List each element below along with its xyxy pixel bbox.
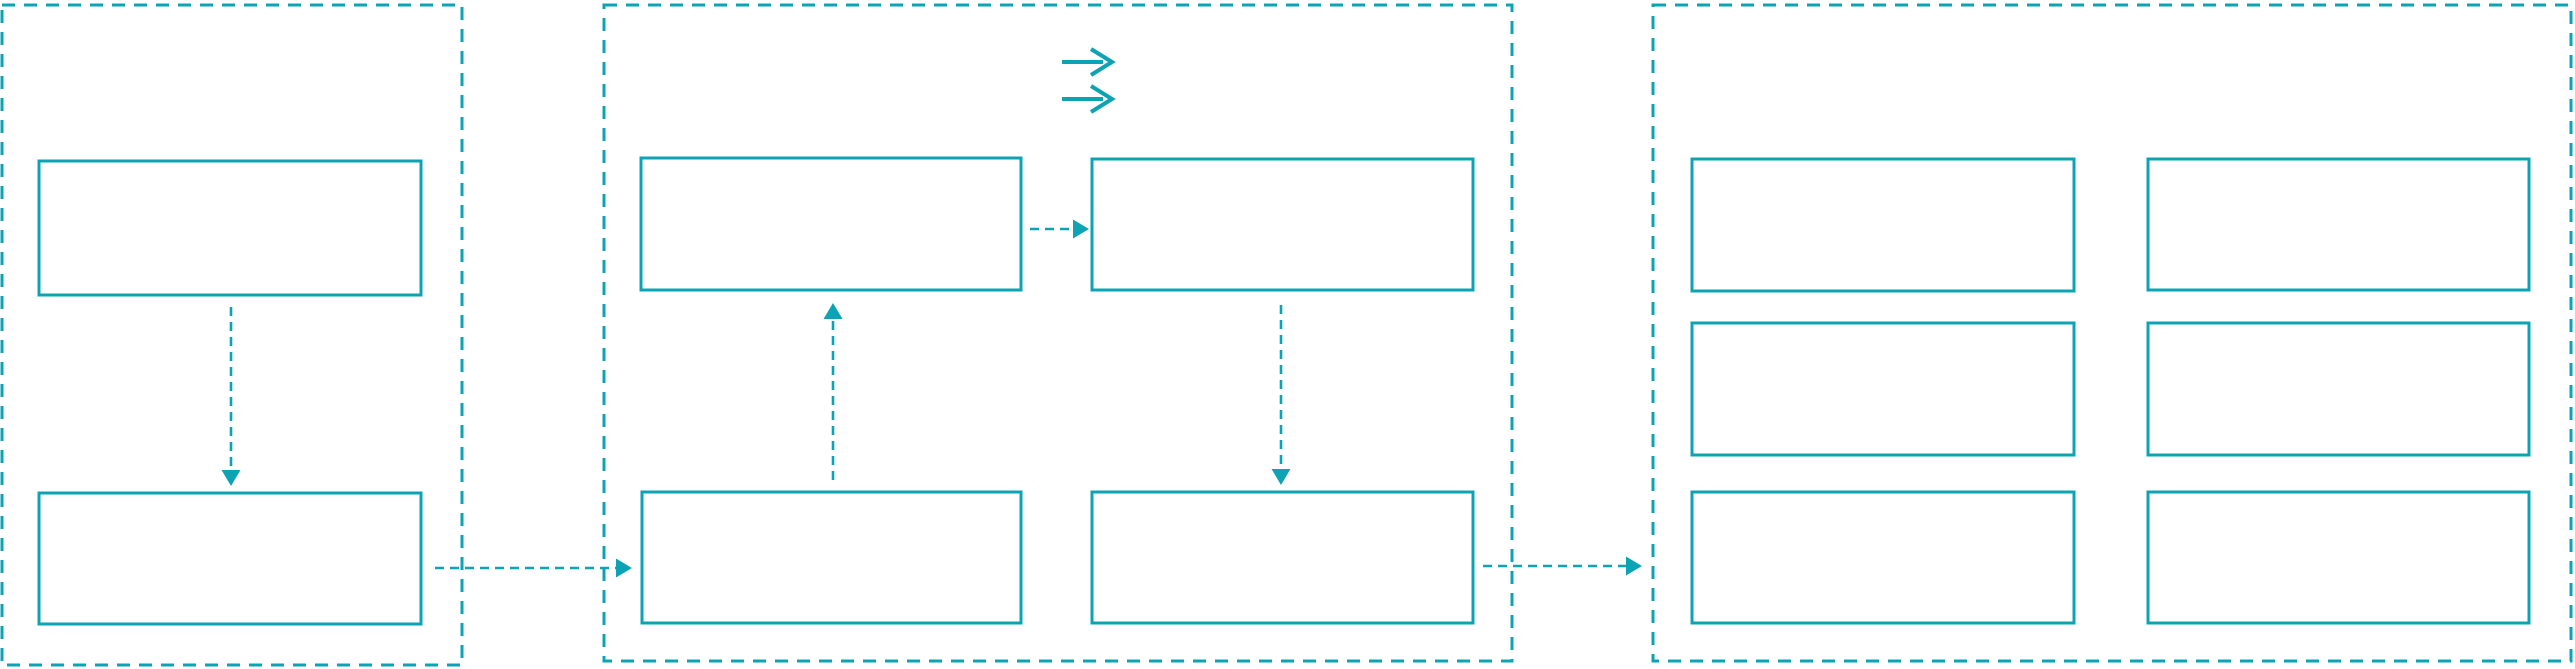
double-flow-arrow-bottom-icon	[1062, 86, 1112, 112]
middle-top-right-box	[1092, 159, 1473, 290]
right-row2-left-box	[1692, 323, 2074, 455]
right-row3-right-box	[2148, 492, 2529, 623]
right-row1-left-box	[1692, 159, 2074, 291]
left-top-to-bottom-arrow	[222, 307, 241, 486]
left-bottom-box	[39, 493, 421, 624]
left-to-middle-arrow	[435, 559, 632, 578]
diagram-canvas	[0, 0, 2575, 669]
middle-bottom-left-box	[642, 492, 1021, 623]
right-row1-right-box	[2148, 159, 2529, 290]
right-row3-left-box	[1692, 492, 2074, 623]
middle-top-left-to-top-right-arrow	[1030, 220, 1089, 239]
diagram-svg-layer	[0, 0, 2575, 669]
middle-bottom-right-box	[1092, 492, 1473, 623]
middle-top-right-to-bottom-right-arrow	[1272, 305, 1291, 485]
middle-bottom-left-to-top-left-arrow	[824, 303, 843, 480]
double-flow-arrow-top-icon	[1062, 49, 1112, 75]
left-top-box	[39, 161, 421, 295]
middle-to-right-arrow	[1483, 557, 1642, 576]
right-row2-right-box	[2148, 323, 2529, 455]
middle-top-left-box	[641, 158, 1021, 290]
